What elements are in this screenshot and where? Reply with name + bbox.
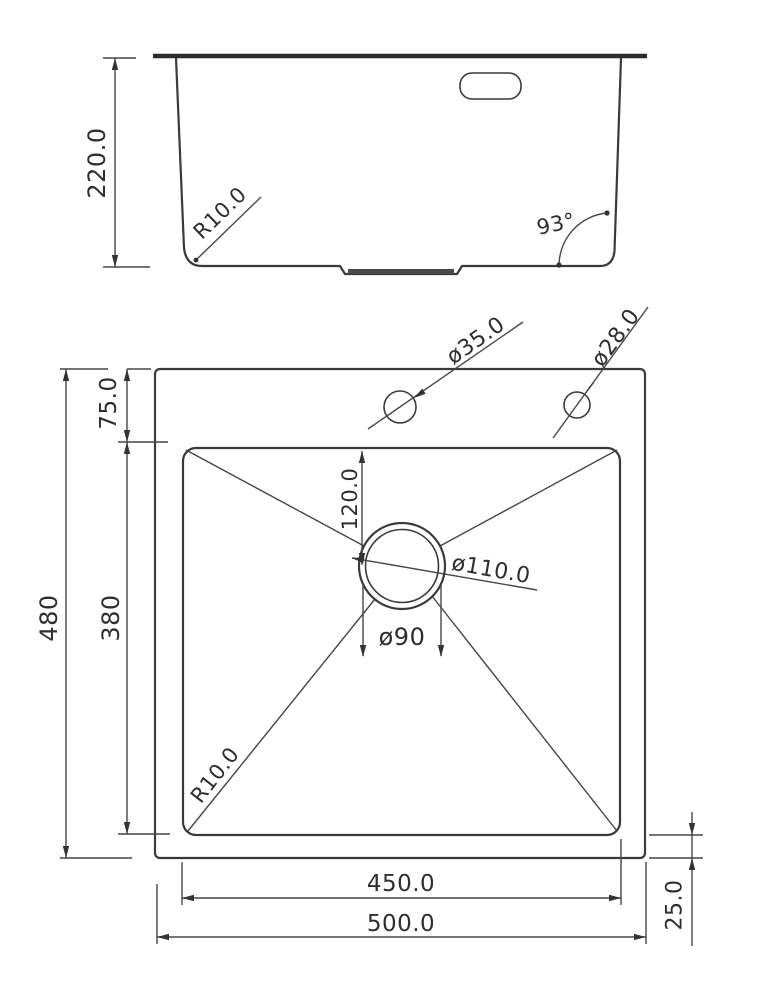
arrow-down-icon: [63, 846, 69, 858]
overflow-hole: [460, 73, 521, 99]
arc-end-dot: [604, 210, 609, 215]
dim-rim-and-bowl-depth: 75.0 380: [96, 369, 170, 834]
drawing-canvas: 220.0 R10.0 93°: [0, 0, 768, 1000]
accessory-hole-diameter-label: ø28.0: [587, 304, 645, 371]
crease-bottom-right: [432, 596, 617, 831]
arrow-up-icon: [124, 442, 130, 454]
dim-rim-bottom: 25.0: [649, 812, 703, 946]
arrow-up-icon: [63, 369, 69, 381]
side-view: 220.0 R10.0 93°: [83, 56, 647, 274]
bowl-width-label: 450.0: [367, 871, 435, 897]
rim-top-width-label: 75.0: [96, 376, 122, 429]
arrow-down-icon: [112, 255, 118, 267]
arrow-left-icon: [182, 895, 194, 901]
callout-side-corner-radius: R10.0: [189, 182, 261, 262]
drain-hole-diameter-label: ø90: [379, 623, 426, 651]
dim-side-depth: 220.0: [83, 58, 150, 267]
arrow-down-icon: [438, 645, 444, 657]
arrow-up-icon: [689, 858, 695, 870]
arrow-up-icon: [359, 451, 365, 463]
crease-top-right: [440, 450, 617, 546]
arrow-right-icon: [609, 895, 621, 901]
plan-outer-rim: [155, 369, 645, 858]
rim-bottom-width-label: 25.0: [663, 880, 688, 931]
arrow-up-icon: [124, 369, 130, 381]
dim-drain-offset: 120.0: [338, 451, 365, 565]
wall-angle-label: 93°: [535, 208, 578, 240]
callout-accessory-hole: ø28.0: [553, 304, 648, 438]
sink-technical-drawing: 220.0 R10.0 93°: [0, 0, 768, 1000]
overall-width-label: 500.0: [367, 911, 435, 937]
dim-bowl-width: 450.0: [182, 839, 621, 905]
callout-wall-angle: 93°: [535, 208, 610, 267]
bowl-depth-label: 380: [97, 594, 125, 641]
side-depth-label: 220.0: [83, 127, 111, 198]
overall-depth-label: 480: [35, 594, 63, 641]
arrow-right-icon: [634, 934, 646, 940]
arrow-up-icon: [112, 58, 118, 70]
crease-bottom-left: [188, 599, 375, 831]
arrow-down-icon: [124, 430, 130, 442]
faucet-hole-diameter-label: ø35.0: [442, 312, 510, 370]
drain-flange-diameter-label: ø110.0: [450, 551, 533, 589]
leader-dot: [194, 258, 199, 263]
arrow-down-icon: [124, 822, 130, 834]
arc-end-dot: [556, 262, 561, 267]
arrow-down-icon: [689, 823, 695, 835]
arrow-down-icon: [360, 645, 366, 657]
side-corner-radius-label: R10.0: [189, 182, 252, 244]
drain-offset-label: 120.0: [338, 468, 362, 531]
plan-view: ø35.0 ø28.0 480 75.0 38: [35, 304, 703, 946]
side-bowl-outline: [176, 58, 621, 274]
callout-faucet-hole: ø35.0: [368, 312, 523, 429]
arrow-left-icon: [157, 934, 169, 940]
